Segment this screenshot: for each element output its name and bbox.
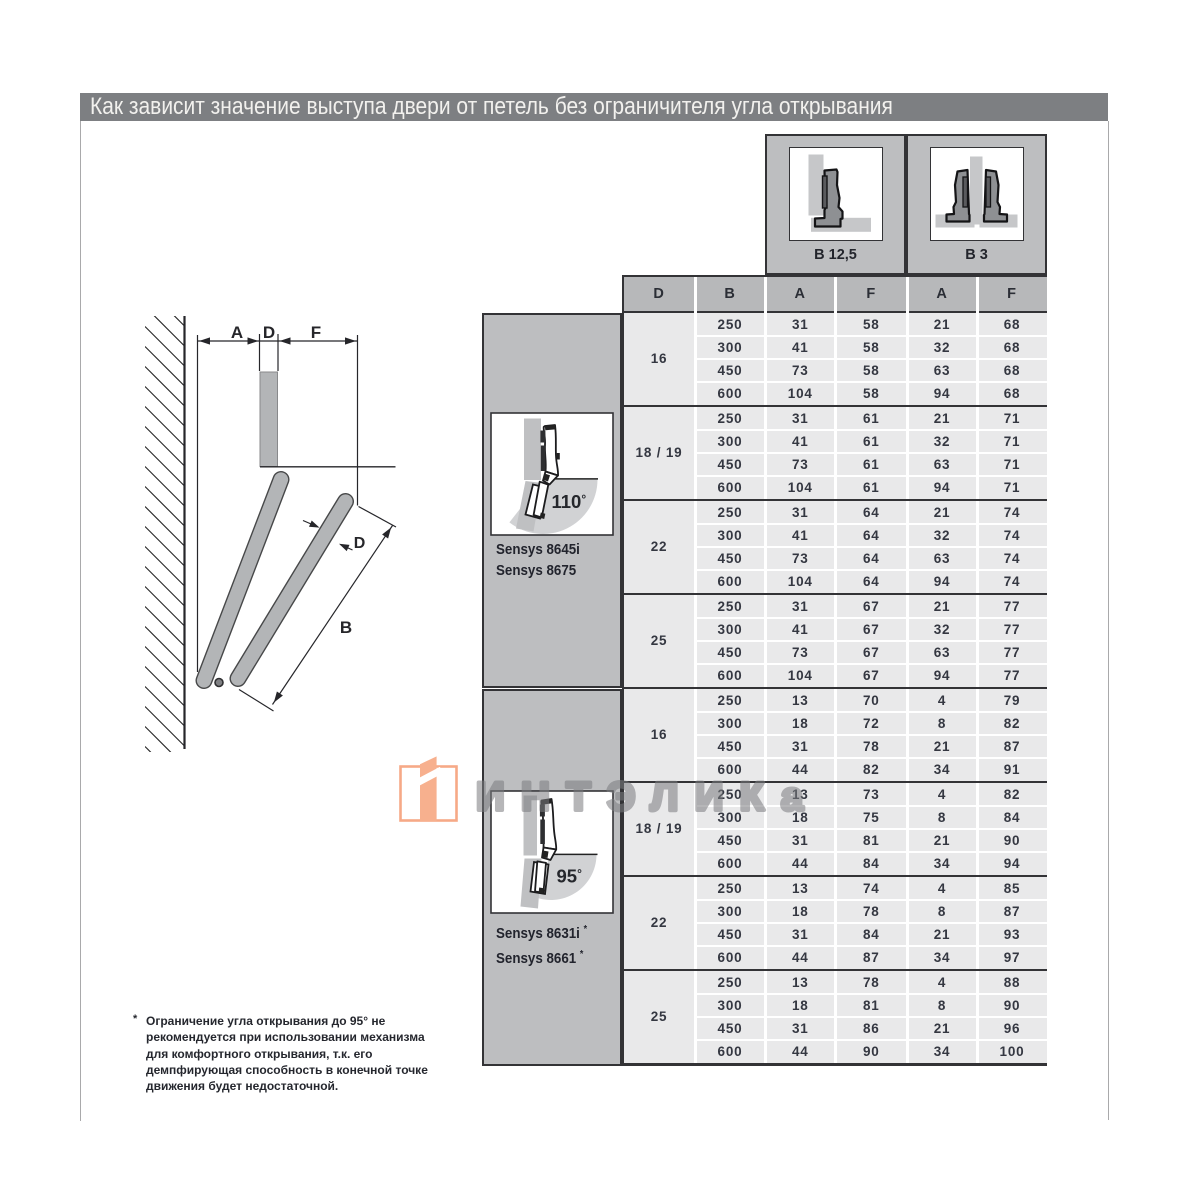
svg-text:D: D	[263, 323, 275, 342]
svg-text:110°: 110°	[552, 491, 587, 512]
svg-text:ИНТЭЛИКа: ИНТЭЛИКа	[476, 775, 819, 819]
svg-text:F: F	[311, 323, 321, 342]
svg-text:A: A	[231, 323, 243, 342]
svg-text:B: B	[340, 618, 352, 637]
svg-text:D: D	[354, 535, 366, 552]
